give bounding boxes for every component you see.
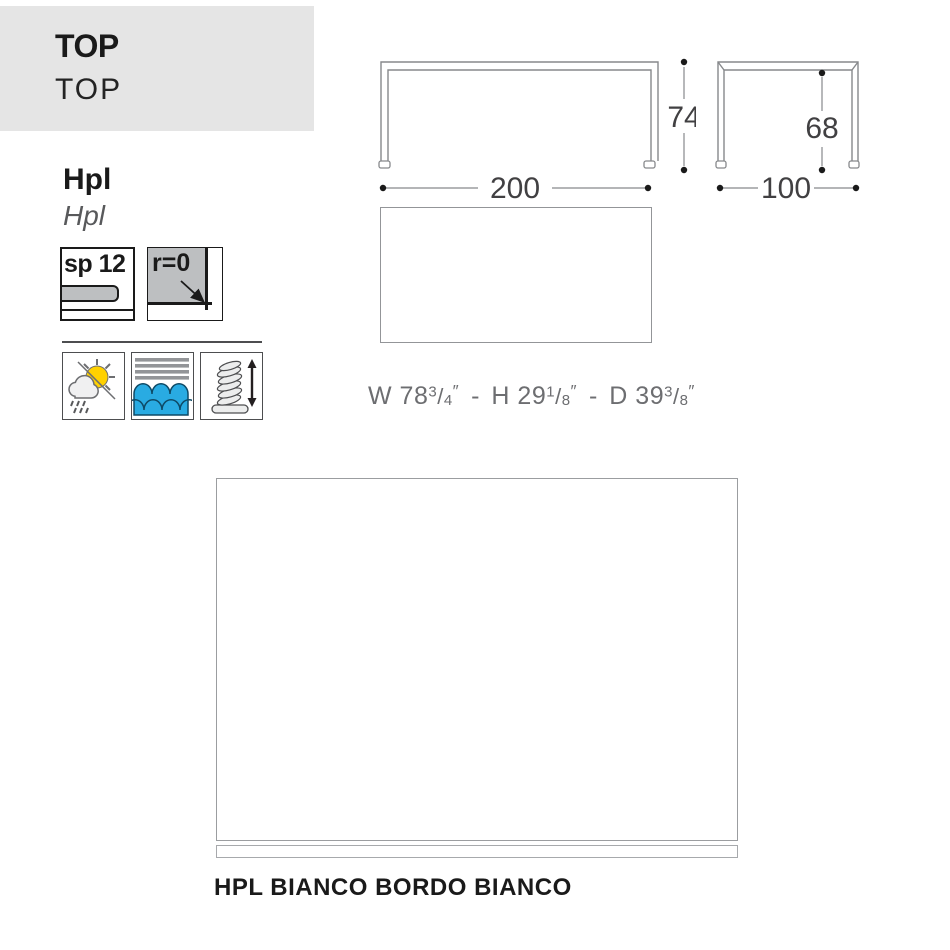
front-height-dim: 74 <box>667 101 696 134</box>
front-left-foot <box>379 161 390 168</box>
side-left-foot <box>716 161 726 168</box>
header-band: TOP TOP <box>0 6 314 131</box>
material-title: Hpl <box>63 163 111 196</box>
finish-swatch <box>216 478 738 841</box>
weatherproof-icon <box>62 352 125 420</box>
side-right-foot <box>849 161 859 168</box>
adjustable-glide-icon <box>200 352 263 420</box>
page-subtitle: TOP <box>55 75 314 105</box>
section-line <box>62 309 133 311</box>
panel-thickness-icon <box>62 285 119 302</box>
sun-cloud-rain-glyph <box>63 353 123 418</box>
top-view-outline <box>380 207 652 343</box>
page-title: TOP <box>55 30 314 62</box>
spring-arrow-glyph <box>201 353 261 418</box>
front-frame-inner <box>388 70 651 161</box>
imperial-part-D: D 393/8″ <box>609 382 695 410</box>
imperial-dimensions: W 783/4″ - H 291/8″ - D 393/8″ <box>368 381 695 411</box>
front-frame-outer <box>381 62 658 161</box>
front-view-drawing: 200 74 <box>376 54 696 200</box>
thickness-label: sp 12 <box>64 250 125 279</box>
material-block: Hpl Hpl <box>63 163 111 232</box>
thickness-spec-box: sp 12 <box>60 247 135 321</box>
imperial-part-W: W 783/4″ <box>368 382 460 410</box>
corner-arrow-icon <box>148 248 221 319</box>
finish-label: HPL BIANCO BORDO BIANCO <box>214 874 572 902</box>
front-width-dim: 200 <box>490 172 540 200</box>
spec-sheet-page: { "header": { "title": "TOP", "subtitle"… <box>0 0 950 950</box>
features-divider <box>62 341 262 343</box>
front-right-foot <box>644 161 655 168</box>
water-resistant-icon <box>131 352 194 420</box>
material-subtitle: Hpl <box>63 201 111 232</box>
finish-edge-strip <box>216 845 738 858</box>
waves-glyph <box>132 353 192 418</box>
imperial-part-H: H 291/8″ <box>491 382 577 410</box>
side-view-drawing: 68 100 <box>710 54 880 200</box>
side-inner-height-dim: 68 <box>805 112 838 145</box>
side-depth-dim: 100 <box>761 172 811 200</box>
radius-spec-box: r=0 <box>147 247 223 321</box>
